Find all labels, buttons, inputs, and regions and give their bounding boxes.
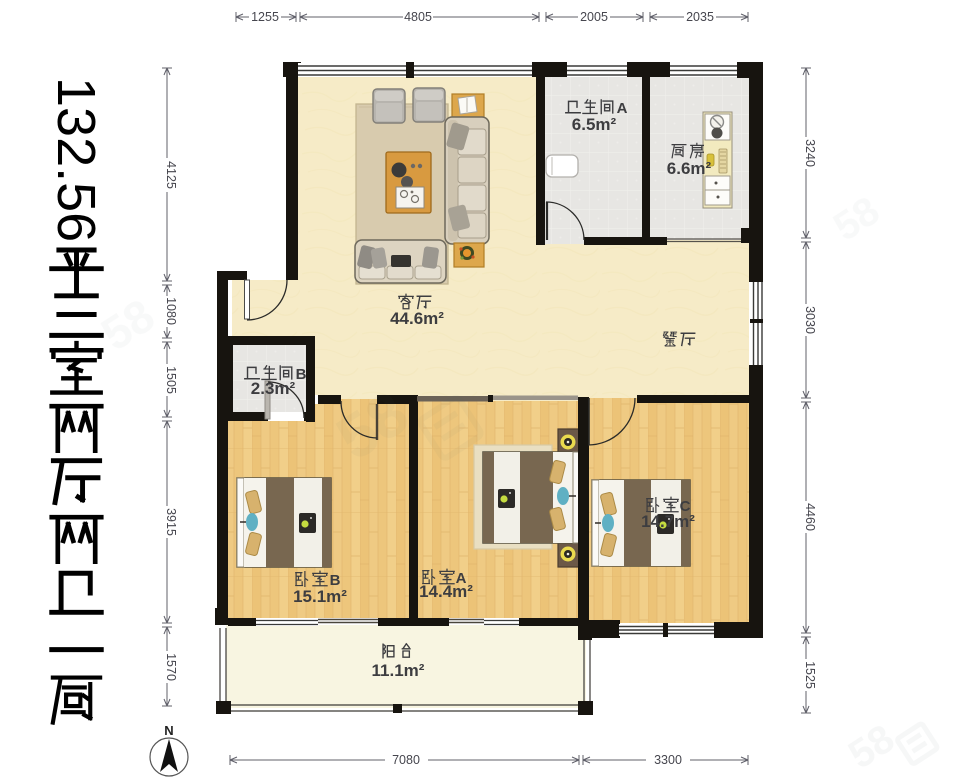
svg-text:14.7m²: 14.7m² <box>641 512 695 531</box>
svg-text:6.5m²: 6.5m² <box>572 115 617 134</box>
svg-text:3300: 3300 <box>654 753 682 767</box>
svg-text:2.3m²: 2.3m² <box>251 379 296 398</box>
svg-text:2035: 2035 <box>686 10 714 24</box>
svg-text:3240: 3240 <box>803 139 817 167</box>
svg-text:11.1m²: 11.1m² <box>372 661 425 680</box>
svg-text:2005: 2005 <box>580 10 608 24</box>
svg-text:A: A <box>617 100 628 117</box>
svg-text:1505: 1505 <box>164 366 178 394</box>
svg-text:44.6m²: 44.6m² <box>390 309 444 328</box>
svg-text:6.6m²: 6.6m² <box>667 159 712 178</box>
svg-text:7080: 7080 <box>392 753 420 767</box>
svg-text:14.4m²: 14.4m² <box>419 582 473 601</box>
svg-text:4460: 4460 <box>803 503 817 531</box>
svg-text:15.1m²: 15.1m² <box>293 587 347 606</box>
svg-text:1080: 1080 <box>164 297 178 325</box>
svg-text:N: N <box>164 723 173 738</box>
svg-text:132.56: 132.56 <box>46 77 106 242</box>
svg-text:4125: 4125 <box>164 161 178 189</box>
svg-text:3030: 3030 <box>803 306 817 334</box>
svg-text:B: B <box>296 366 307 383</box>
svg-text:1525: 1525 <box>803 661 817 689</box>
svg-text:1255: 1255 <box>251 10 279 24</box>
svg-text:4805: 4805 <box>404 10 432 24</box>
svg-text:3915: 3915 <box>164 508 178 536</box>
svg-text:1570: 1570 <box>164 653 178 681</box>
